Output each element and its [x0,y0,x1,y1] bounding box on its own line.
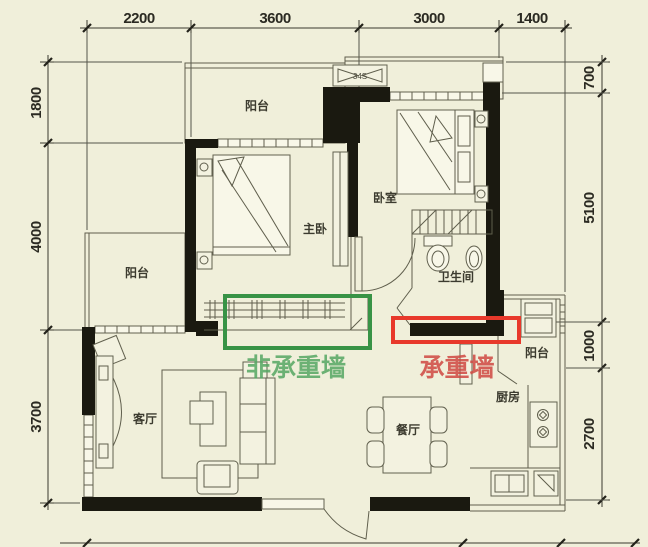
room-label-balcony-left: 阳台 [125,265,149,280]
right-balcony-fixtures [521,299,556,337]
floor-plan-image: 2200 3600 3000 1400 1800 4000 3700 700 5… [0,0,648,547]
entry-door [262,499,369,539]
room-label-balcony-right: 阳台 [525,345,549,360]
room-label-balcony-top: 阳台 [245,98,269,113]
room-label-master-bedroom: 主卧 [303,221,327,236]
dim-left-1: 1800 [28,87,45,119]
non-load-bearing-caption: 非承重墙 [246,353,346,382]
room-label-bathroom: 卫生间 [438,269,474,284]
dim-top-2: 3600 [259,10,291,27]
dim-left-3: 3700 [28,401,45,433]
load-bearing-wall-segment [410,323,504,336]
floor-plan-svg: 2200 3600 3000 1400 1800 4000 3700 700 5… [0,0,648,547]
dim-right-2: 5100 [581,192,598,224]
master-bedroom-furniture [197,152,348,269]
bathroom-fixtures [424,236,482,271]
dim-top-1: 2200 [123,10,155,27]
dim-right-1: 700 [581,66,598,90]
dimension-bottom-partial [60,539,640,547]
ac-platform: 34S [333,65,387,86]
dim-top-4: 1400 [516,10,548,27]
dim-left-2: 4000 [28,221,45,253]
dim-right-4: 2700 [581,418,598,450]
annotation-non-load-bearing: 非承重墙 [225,296,370,382]
load-bearing-caption: 承重墙 [419,353,494,382]
ac-unit-label: 34S [353,72,367,81]
non-load-bearing-highlight-box [225,296,370,348]
room-label-living-room: 客厅 [132,411,157,426]
room-label-kitchen: 厨房 [496,389,520,404]
dim-top-3: 3000 [413,10,445,27]
non-load-bearing-wall-segment [204,300,362,330]
dim-right-3: 1000 [581,330,598,362]
room-label-dining-room: 餐厅 [396,422,420,437]
room-label-bedroom: 卧室 [373,190,397,205]
